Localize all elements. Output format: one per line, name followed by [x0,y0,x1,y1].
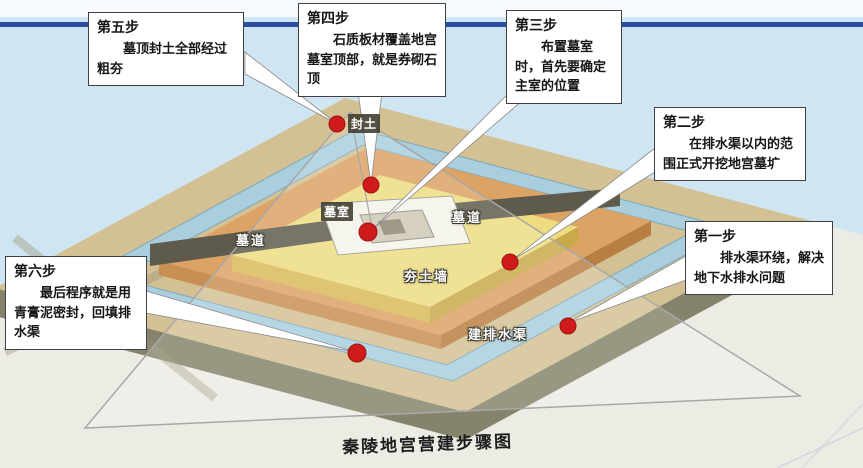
step-5-body: 墓顶封土全部经过粗夯 [97,40,236,79]
label-mound-soil: 封土 [348,114,380,133]
label-drainage-channel: 建排水渠 [468,324,528,343]
label-tomb-passage-left: 墓道 [236,230,266,249]
step-2-title: 第二步 [663,113,798,134]
step-6-title: 第六步 [14,262,139,283]
step-3-body: 布置墓室时，首先要确定主室的位置 [515,38,614,97]
diagram-page: 封土 墓室 墓道 墓道 夯土墙 建排水渠 第五步 墓顶封土全部经过粗夯 第四步 … [0,0,863,468]
step-6-body: 最后程序就是用青膏泥密封，回填排水渠 [14,284,139,343]
label-rammed-earth-wall: 夯土墙 [404,266,449,285]
step-1-title: 第一步 [694,227,825,248]
callout-step-1: 第一步 排水渠环绕，解决地下水排水问题 [685,221,833,295]
label-burial-chamber: 墓室 [321,202,353,221]
callout-step-2: 第二步 在排水渠以内的范围正式开挖地宫墓圹 [654,107,806,181]
callout-step-6: 第六步 最后程序就是用青膏泥密封，回填排水渠 [5,256,147,350]
step-5-title: 第五步 [97,18,236,39]
callout-step-4: 第四步 石质板材覆盖地宫墓室顶部，就是券砌石顶 [298,3,446,97]
step-1-body: 排水渠环绕，解决地下水排水问题 [694,249,825,288]
step-3-title: 第三步 [515,16,614,37]
step-2-body: 在排水渠以内的范围正式开挖地宫墓圹 [663,135,798,174]
callout-step-5: 第五步 墓顶封土全部经过粗夯 [88,12,244,86]
callout-step-3: 第三步 布置墓室时，首先要确定主室的位置 [506,10,622,104]
label-tomb-passage-right: 墓道 [452,207,482,226]
step-4-body: 石质板材覆盖地宫墓室顶部，就是券砌石顶 [307,31,438,90]
step-4-title: 第四步 [307,9,438,30]
